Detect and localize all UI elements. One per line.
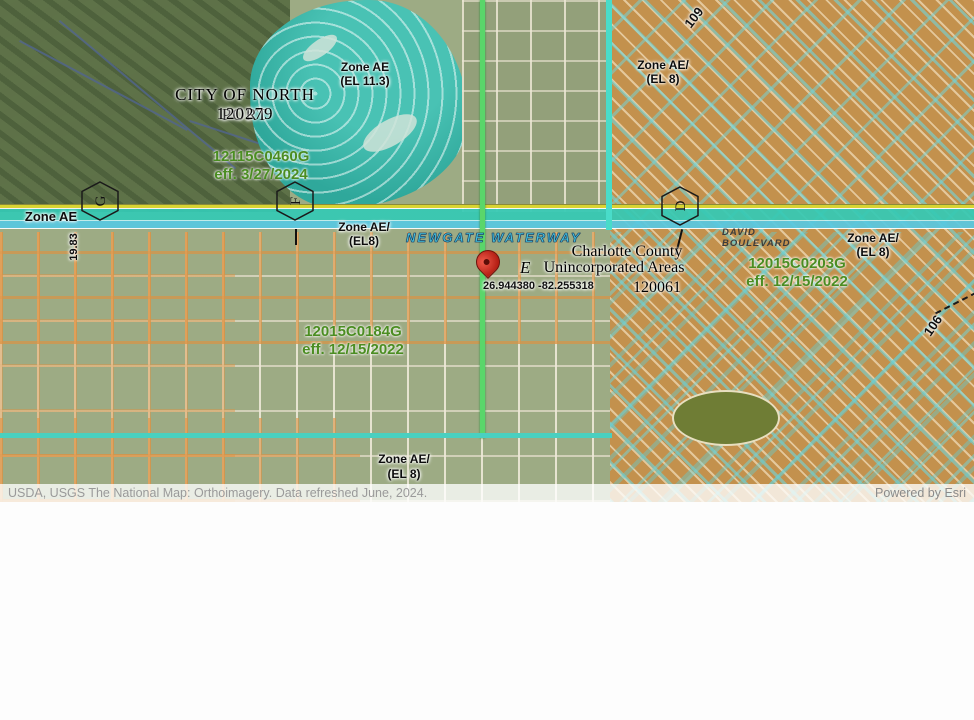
zone-label: Zone AE bbox=[18, 210, 84, 224]
zone-label: (EL8) bbox=[328, 234, 400, 248]
zone-label: (EL 11.3) bbox=[322, 74, 408, 88]
zone-label: (EL 8) bbox=[368, 467, 440, 481]
zone-ae-waterway-band bbox=[0, 208, 974, 229]
firm-panel-id: 12115C0460G bbox=[196, 148, 326, 166]
zone-label: (EL 8) bbox=[630, 72, 696, 86]
water-surface-elevation-label: 19.83 bbox=[67, 225, 81, 269]
firm-panel-id: 12015C0203G bbox=[742, 255, 852, 273]
county-name2-label: Unincorporated Areas bbox=[535, 259, 693, 277]
legend-panel: PIN Approximate location based on user i… bbox=[0, 502, 974, 720]
firm-panel-id: 12015C0184G bbox=[298, 323, 408, 341]
firm-panel-eff-date: eff. 12/15/2022 bbox=[742, 273, 852, 291]
cross-section-tick bbox=[295, 229, 297, 245]
waterway-name-label: NEWGATE WATERWAY bbox=[406, 230, 581, 245]
cross-section-letter: F bbox=[288, 197, 304, 205]
pond bbox=[672, 390, 780, 446]
firm-panel-eff-date: eff. 12/15/2022 bbox=[298, 341, 408, 359]
street-name-label: DAVID bbox=[722, 228, 756, 238]
cross-section-marker-f: F bbox=[274, 181, 316, 221]
cross-section-marker-g: G bbox=[79, 181, 121, 221]
cross-section-letter: G bbox=[93, 195, 109, 206]
pin-coordinates-label: 26.944380 -82.255318 bbox=[483, 280, 594, 292]
firm-panel-eff-date: eff. 3/27/2024 bbox=[196, 166, 326, 184]
map-canvas[interactable]: G F D CITY OF NORTH PORT 120279 Zone AE … bbox=[0, 0, 974, 502]
zone-label: Zone AE/ bbox=[368, 452, 440, 466]
county-id-label: 120061 bbox=[627, 279, 687, 297]
zone-label: Zone AE/ bbox=[630, 58, 696, 72]
cross-section-letter-e: E bbox=[520, 258, 530, 278]
zone-label: Zone AE/ bbox=[840, 231, 906, 245]
limit-line-vertical bbox=[480, 0, 485, 438]
zone-label: Zone AE bbox=[322, 60, 408, 74]
powered-by-esri[interactable]: Powered by Esri bbox=[875, 486, 966, 500]
street-name-label: BOULEVARD bbox=[722, 239, 790, 249]
cross-section-marker-d: D bbox=[659, 186, 701, 226]
cross-section-letter: D bbox=[673, 200, 689, 211]
canal-line-horizontal bbox=[0, 433, 612, 438]
floodmap-boundary-vertical bbox=[606, 0, 612, 230]
zone-label: Zone AE/ bbox=[328, 220, 400, 234]
flood-map-viewer: G F D CITY OF NORTH PORT 120279 Zone AE … bbox=[0, 0, 974, 720]
attribution-text: USDA, USGS The National Map: Orthoimager… bbox=[8, 486, 427, 500]
city-id-label: 120279 bbox=[155, 104, 335, 124]
